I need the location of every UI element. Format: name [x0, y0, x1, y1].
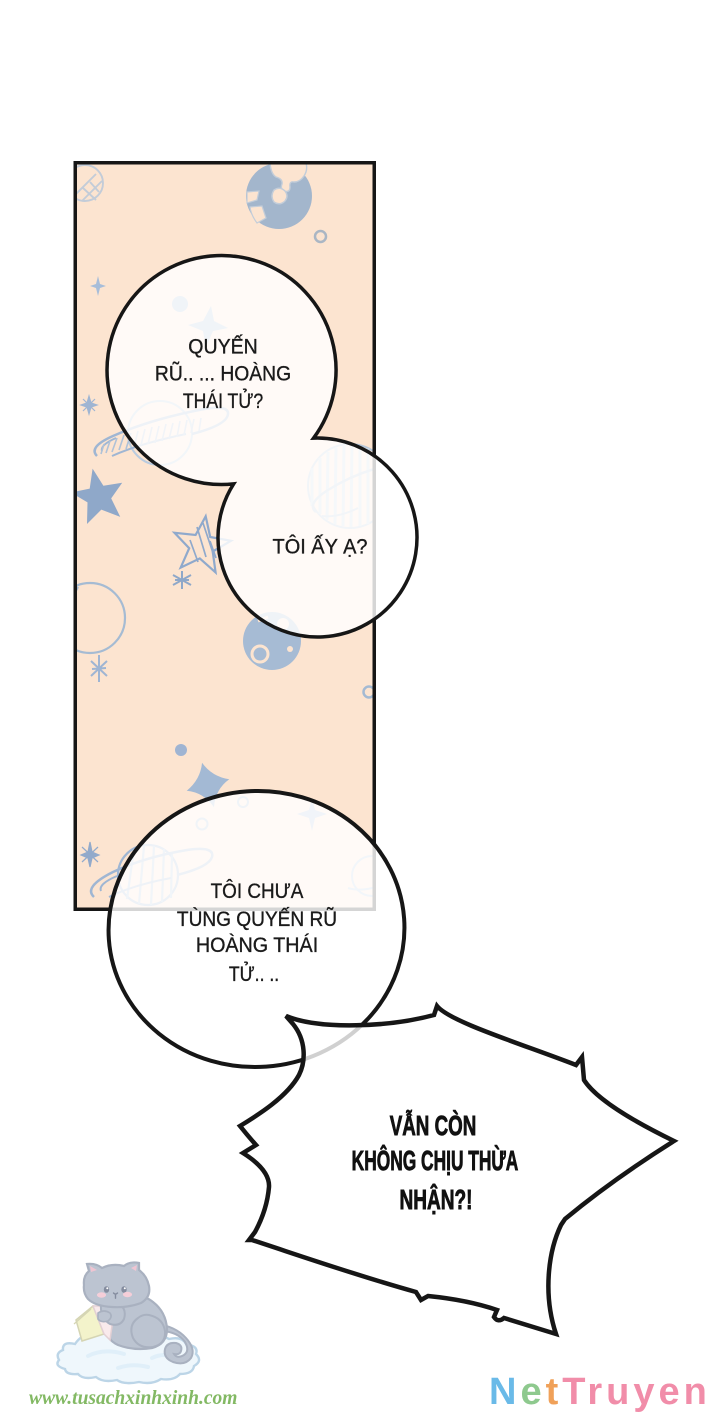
svg-text:VẪN CÒN: VẪN CÒN: [390, 1108, 477, 1142]
svg-text:TÔI CHƯA: TÔI CHƯA: [211, 879, 304, 903]
svg-text:TỬ.. ..: TỬ.. ..: [229, 960, 279, 986]
svg-text:HOÀNG THÁI: HOÀNG THÁI: [196, 933, 318, 957]
svg-text:TÙNG QUYẾN RŨ: TÙNG QUYẾN RŨ: [177, 906, 337, 931]
svg-text:NetTruyen: NetTruyen: [489, 1371, 711, 1413]
svg-text:THÁI TỬ?: THÁI TỬ?: [183, 387, 264, 413]
svg-text:www.tusachxinhxinh.com: www.tusachxinhxinh.com: [29, 1388, 237, 1409]
svg-text:RŨ.. ... HOÀNG: RŨ.. ... HOÀNG: [155, 361, 291, 386]
svg-text:NHẬN?!: NHẬN?!: [400, 1183, 473, 1216]
svg-text:KHÔNG CHỊU THỪA: KHÔNG CHỊU THỪA: [352, 1144, 519, 1176]
svg-text:TÔI ẤY Ạ?: TÔI ẤY Ạ?: [273, 535, 368, 559]
svg-text:QUYẾN: QUYẾN: [188, 335, 257, 359]
